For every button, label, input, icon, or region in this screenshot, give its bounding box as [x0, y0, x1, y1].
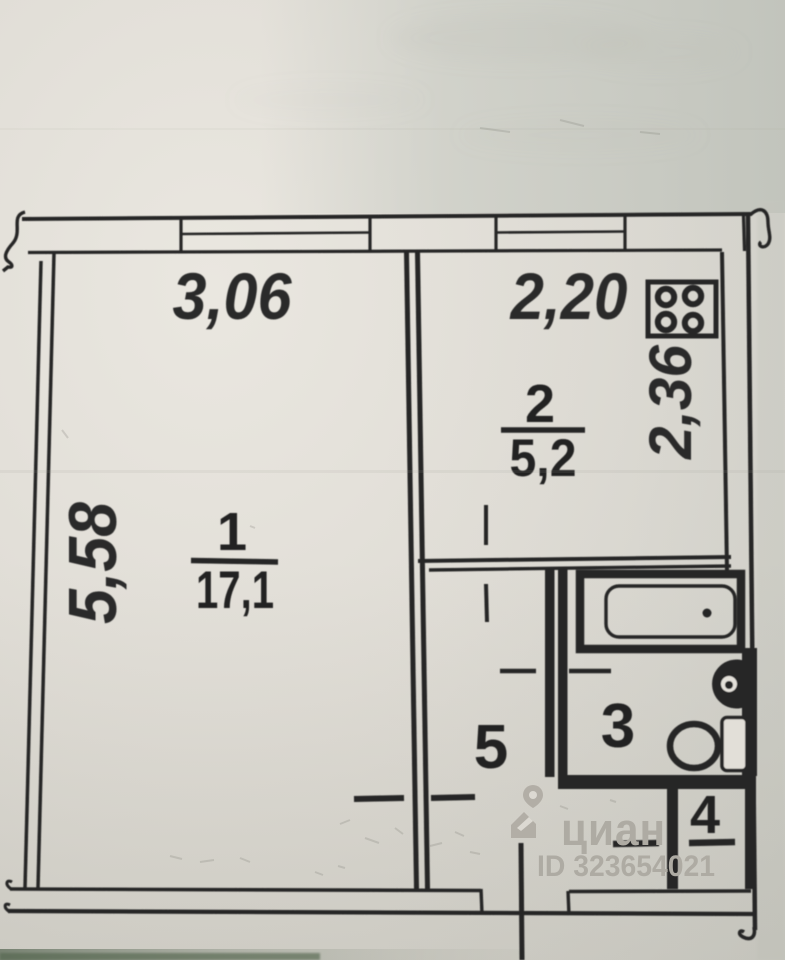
- svg-text:ID 323654021: ID 323654021: [537, 850, 715, 883]
- svg-text:2,20: 2,20: [509, 259, 628, 333]
- svg-text:4: 4: [690, 785, 720, 845]
- svg-text:3: 3: [601, 692, 635, 761]
- svg-text:циан: циан: [561, 804, 666, 855]
- svg-text:5,58: 5,58: [55, 502, 131, 624]
- svg-text:2: 2: [525, 374, 555, 434]
- svg-text:2,36: 2,36: [637, 344, 704, 460]
- svg-text:17,1: 17,1: [196, 561, 274, 620]
- svg-text:1: 1: [217, 502, 247, 562]
- svg-text:5: 5: [474, 713, 508, 782]
- svg-text:5,2: 5,2: [510, 429, 577, 488]
- svg-text:3,06: 3,06: [173, 259, 293, 333]
